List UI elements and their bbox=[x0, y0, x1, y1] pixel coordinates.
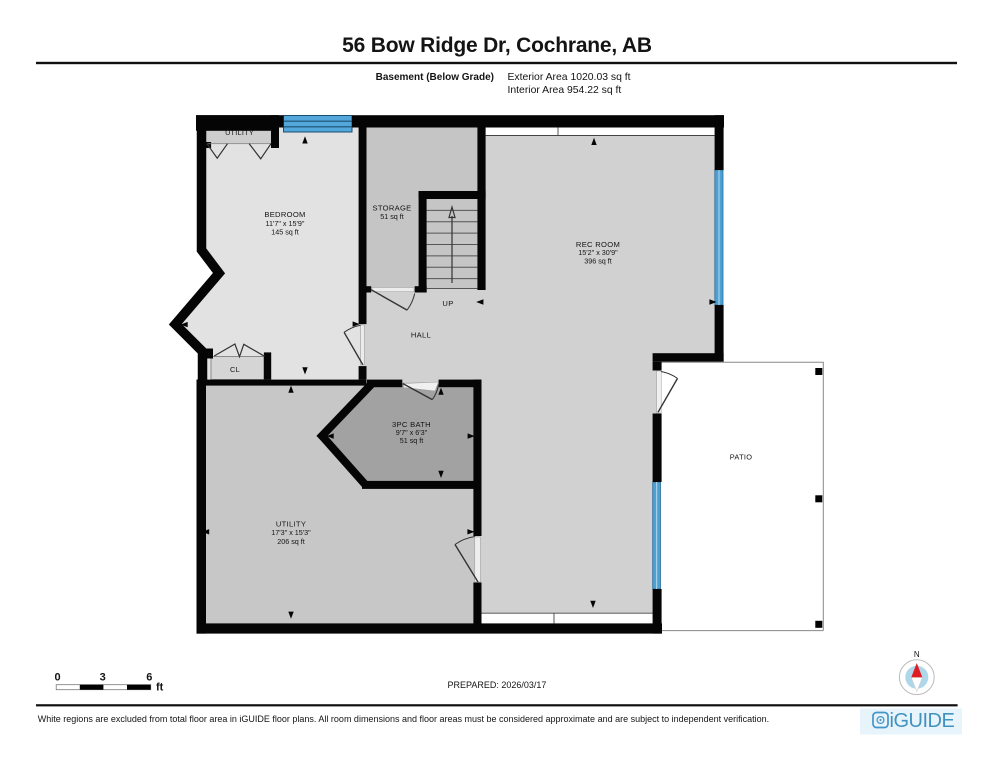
svg-text:17'3" x 15'3": 17'3" x 15'3" bbox=[271, 528, 311, 537]
svg-text:ft: ft bbox=[156, 682, 164, 694]
svg-text:145 sq ft: 145 sq ft bbox=[271, 228, 299, 237]
svg-text:Basement (Below Grade): Basement (Below Grade) bbox=[376, 72, 494, 83]
svg-text:PREPARED: 2026/03/17: PREPARED: 2026/03/17 bbox=[448, 680, 547, 690]
svg-text:396 sq ft: 396 sq ft bbox=[584, 257, 612, 266]
svg-text:N: N bbox=[914, 650, 920, 659]
svg-text:PATIO: PATIO bbox=[730, 453, 753, 462]
svg-text:0: 0 bbox=[55, 672, 61, 684]
svg-text:iGUIDE: iGUIDE bbox=[890, 710, 955, 732]
svg-text:51 sq ft: 51 sq ft bbox=[400, 436, 424, 445]
svg-text:BEDROOM: BEDROOM bbox=[264, 210, 305, 219]
svg-text:HALL: HALL bbox=[411, 331, 431, 340]
svg-text:6: 6 bbox=[146, 672, 152, 684]
svg-text:206 sq ft: 206 sq ft bbox=[277, 537, 305, 546]
svg-text:Interior Area 954.22 sq ft: Interior Area 954.22 sq ft bbox=[508, 85, 622, 96]
svg-text:White regions are excluded fro: White regions are excluded from total fl… bbox=[38, 714, 769, 724]
svg-text:CL: CL bbox=[230, 365, 240, 374]
svg-text:UP: UP bbox=[442, 299, 453, 308]
svg-text:Exterior Area 1020.03 sq ft: Exterior Area 1020.03 sq ft bbox=[508, 72, 631, 83]
svg-text:56 Bow Ridge Dr, Cochrane, AB: 56 Bow Ridge Dr, Cochrane, AB bbox=[342, 34, 652, 57]
svg-text:3: 3 bbox=[100, 672, 106, 684]
svg-text:51 sq ft: 51 sq ft bbox=[380, 212, 404, 221]
